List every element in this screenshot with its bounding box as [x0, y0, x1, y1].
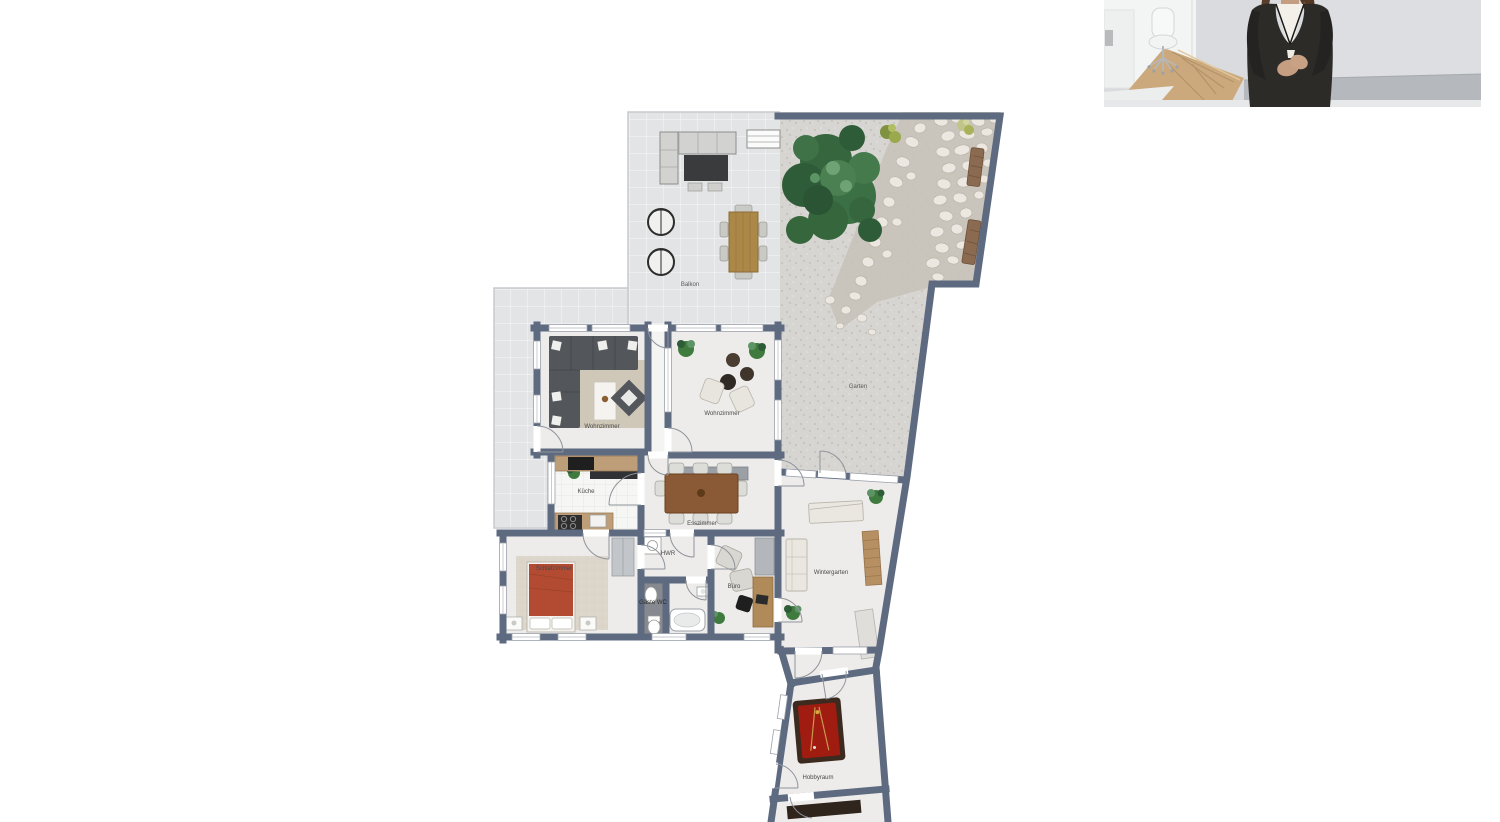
label-wohnzimmer-rechts: Wohnzimmer: [704, 411, 739, 417]
pillow: [530, 618, 550, 629]
garden-area: [778, 112, 1001, 478]
cooktop: [568, 457, 594, 470]
label-balkon: Balkon: [681, 282, 699, 288]
pouf: [726, 353, 740, 367]
label-wintergarten: Wintergarten: [814, 570, 848, 576]
business-woman: [1247, 0, 1333, 107]
label-wohnzimmer-links: Wohnzimmer: [584, 424, 619, 430]
office-chair: [1147, 8, 1178, 75]
label-buero: Büro: [728, 584, 741, 590]
agent-photo-art: [1104, 0, 1481, 107]
sink: [590, 515, 606, 527]
label-gaeste-wc: Gäste WC: [639, 600, 667, 606]
label-hwr: HWR: [661, 551, 676, 557]
pillow: [552, 618, 572, 629]
page: Balkon Garten Wohnzimmer Wohnzimmer Küch…: [0, 0, 1500, 822]
balcony-bench: [747, 130, 780, 148]
label-hobbyraum: Hobbyraum: [802, 775, 833, 781]
pouf: [740, 367, 754, 381]
floorplan: Balkon Garten Wohnzimmer Wohnzimmer Küch…: [0, 0, 1500, 822]
laptop: [755, 594, 768, 605]
bowl: [602, 396, 608, 402]
centerpiece: [697, 489, 705, 497]
label-esszimmer: Esszimmer: [687, 521, 717, 527]
label-kueche: Küche: [577, 489, 595, 495]
billiard-table: [792, 697, 845, 764]
sofa: [786, 539, 807, 591]
label-schlafzimmer: Schlafzimmer: [536, 566, 572, 572]
counter: [555, 456, 638, 471]
agent-photo: [1104, 0, 1481, 107]
label-garten: Garten: [849, 384, 867, 390]
cabinet: [755, 538, 774, 575]
